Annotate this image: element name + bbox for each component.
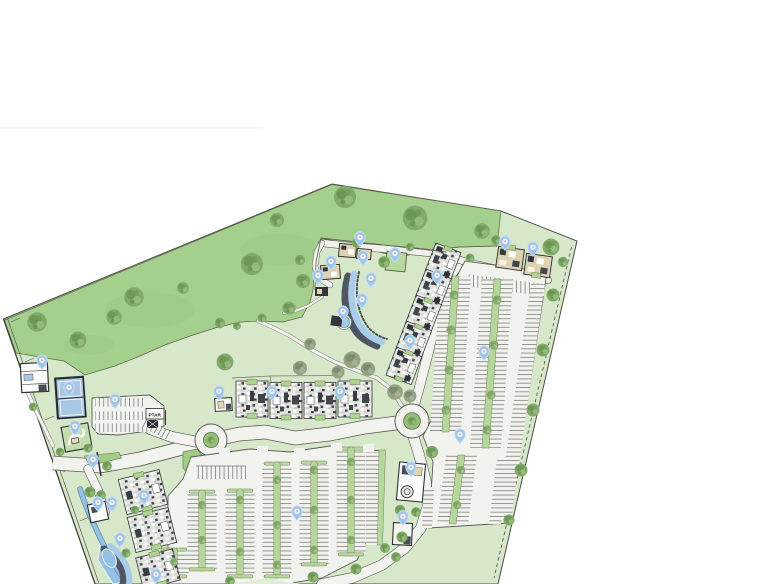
svg-text:PTAR: PTAR — [149, 412, 162, 417]
